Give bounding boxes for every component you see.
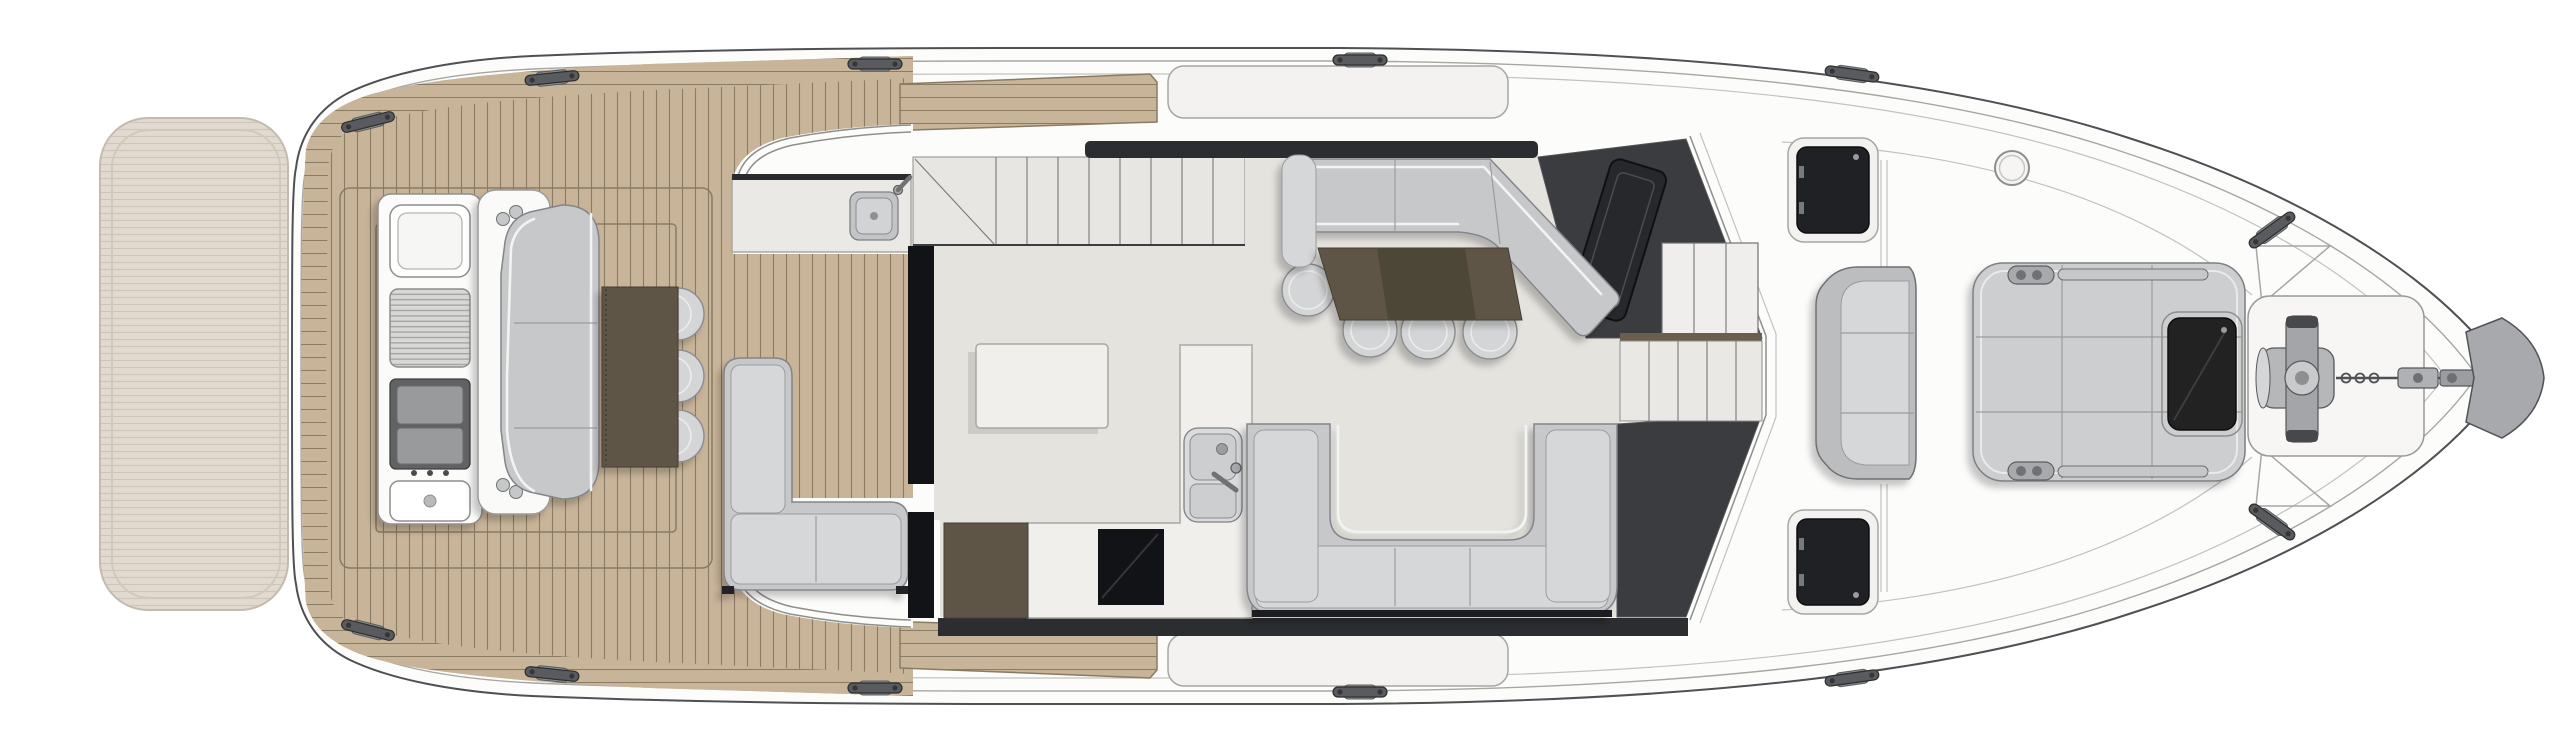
cleat-icon — [1333, 685, 1387, 699]
dinette-table — [1318, 248, 1522, 320]
bow-vent — [1995, 151, 2029, 185]
bow-plate — [2466, 318, 2544, 438]
grill-icon — [390, 289, 470, 367]
cooktop — [1098, 529, 1164, 605]
deck-hatch-port — [1788, 138, 1878, 242]
deck-hatch-starboard — [1788, 510, 1878, 614]
port-window-band — [1085, 141, 1538, 158]
helm-cabinet — [1662, 243, 1758, 335]
cleat-icon — [1333, 53, 1387, 67]
cockpit-dining — [602, 287, 704, 467]
galley-island — [976, 344, 1108, 428]
deck-plan-svg — [0, 0, 2560, 753]
cockpit-counter — [732, 174, 911, 252]
galley-cabinet — [944, 523, 1028, 618]
cockpit-stools — [678, 288, 704, 462]
sun-pad-hatch — [2162, 312, 2242, 436]
flybridge-stairs — [913, 157, 1245, 252]
sun-pad — [1973, 263, 2245, 481]
starboard-window-band — [938, 618, 1688, 636]
fridge-drawers — [390, 379, 470, 476]
cockpit-table — [602, 287, 678, 467]
cleat-icon — [848, 57, 902, 71]
transom-bench-seat — [478, 190, 599, 514]
salon-aft-bulkhead — [908, 246, 934, 484]
cleat-icon — [848, 681, 902, 695]
wet-bar-console — [378, 194, 482, 524]
swim-platform — [100, 118, 288, 610]
bow-seat — [1816, 267, 1916, 479]
companionway-steps — [1620, 341, 1762, 421]
faucet-icon — [1231, 463, 1241, 473]
galley-sink — [1184, 428, 1242, 522]
deck-plan — [0, 0, 2560, 753]
